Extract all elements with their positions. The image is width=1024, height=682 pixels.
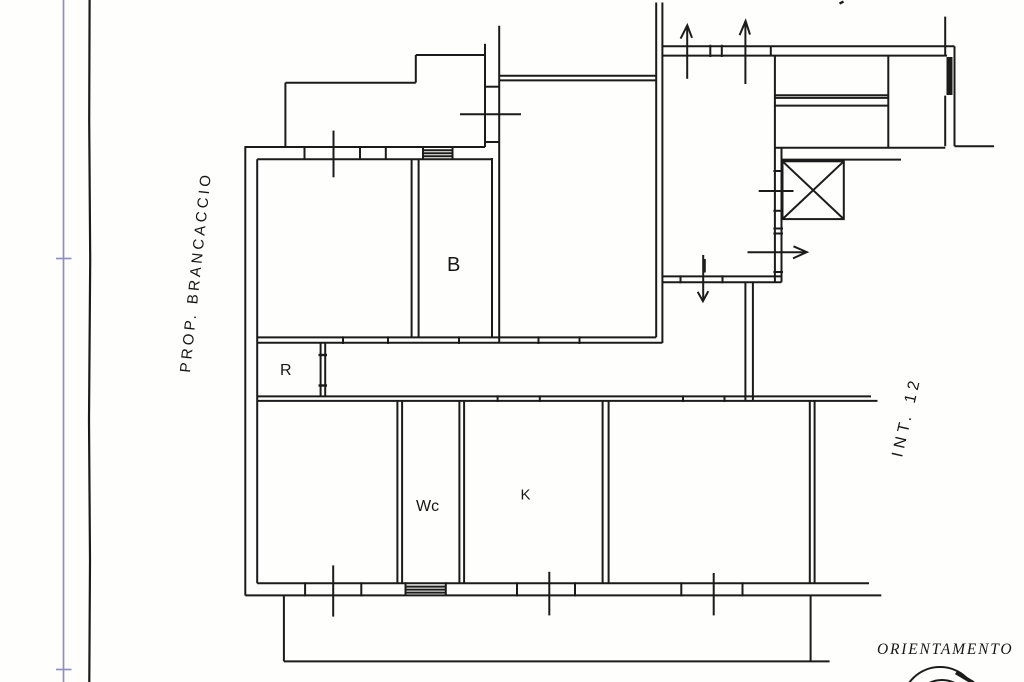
svg-text:ORIENTAMENTO: ORIENTAMENTO (877, 641, 1013, 658)
svg-text:PROP. BRANCACCIO: PROP. BRANCACCIO (177, 171, 215, 373)
svg-text:K: K (521, 487, 531, 504)
svg-text:INT. 12: INT. 12 (889, 375, 924, 459)
svg-text:Wc: Wc (416, 498, 439, 515)
svg-text:B: B (447, 254, 460, 276)
svg-text:R: R (280, 362, 292, 379)
